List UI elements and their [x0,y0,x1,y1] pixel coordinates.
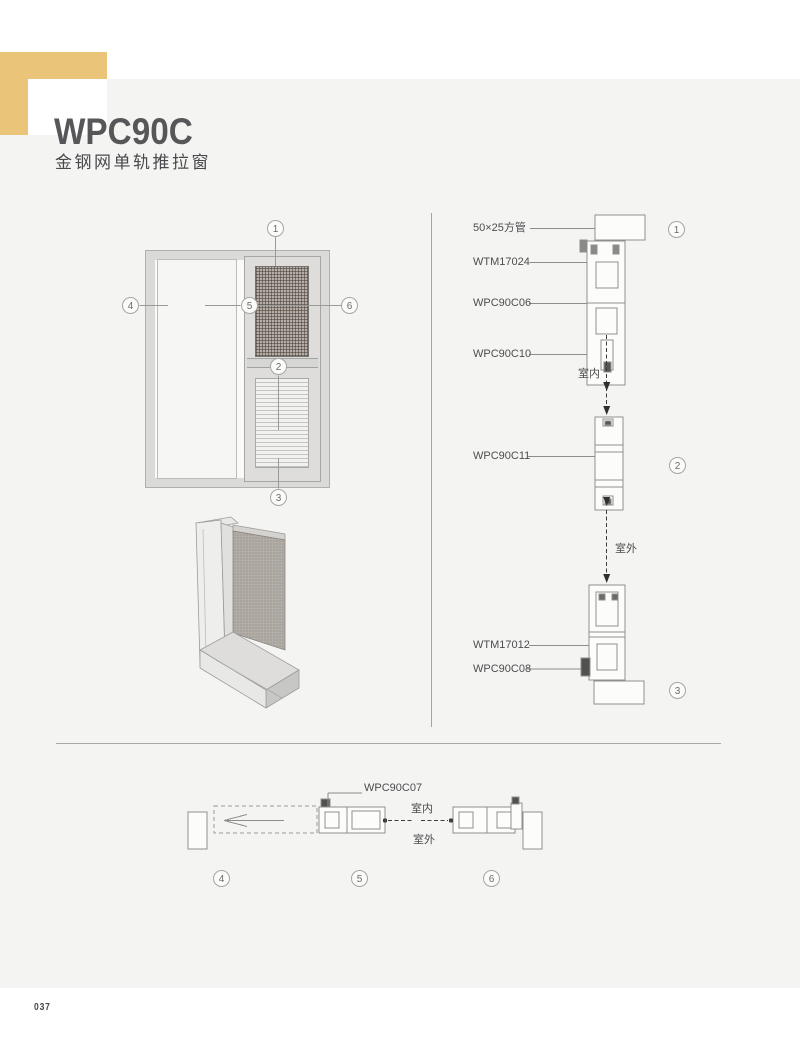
callout-5: 5 [241,297,258,314]
callout-1: 1 [267,220,284,237]
label-wtm17012: WTM17012 [473,639,530,652]
label-wpc90c06: WPC90C06 [473,297,531,310]
callout-3: 3 [270,489,287,506]
section-callout-5: 5 [351,870,368,887]
section-callout-4: 4 [213,870,230,887]
section-callout-6: 6 [483,870,500,887]
callout-6: 6 [341,297,358,314]
horizontal-section-profiles [188,793,542,849]
label-square-tube: 50×25方管 [473,222,526,235]
isometric-corner-view [196,517,299,708]
vertical-section-profiles [580,215,645,704]
callout-2: 2 [270,358,287,375]
line-art-overlay [0,0,800,1043]
label-outdoor-horizontal: 室外 [413,834,435,847]
callout-4: 4 [122,297,139,314]
label-outdoor-vertical: 室外 [615,543,637,556]
catalog-page: WPC90C 金钢网单轨推拉窗 037 [0,0,800,1043]
label-indoor-vertical: 室内 [578,368,600,381]
section-callout-2: 2 [669,457,686,474]
label-wpc90c10: WPC90C10 [473,348,531,361]
label-wpc90c07: WPC90C07 [364,782,422,795]
elevation-leader-lines [140,237,342,489]
label-wpc90c08: WPC90C08 [473,663,531,676]
label-indoor-horizontal: 室内 [411,803,433,816]
section-callout-3: 3 [669,682,686,699]
label-wtm17024: WTM17024 [473,256,530,269]
section-callout-1: 1 [668,221,685,238]
label-wpc90c11: WPC90C11 [473,450,530,463]
